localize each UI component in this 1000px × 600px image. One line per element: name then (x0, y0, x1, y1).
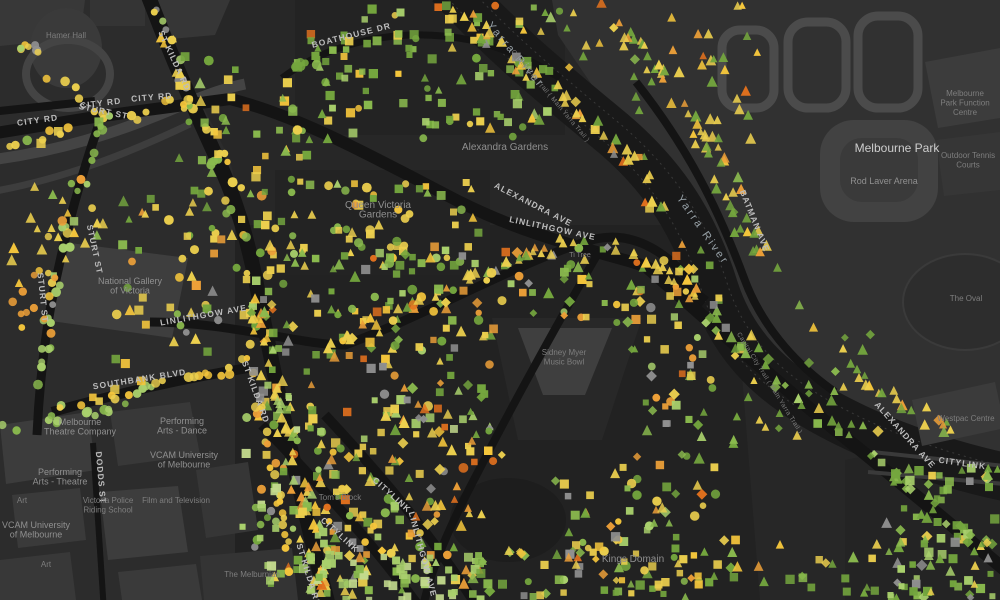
tree-marker-circle[interactable] (246, 340, 255, 349)
tree-marker-square[interactable] (644, 527, 651, 534)
tree-marker-circle[interactable] (30, 304, 38, 312)
tree-marker-square[interactable] (445, 566, 452, 573)
tree-marker-square[interactable] (586, 491, 594, 499)
tree-marker-circle[interactable] (337, 444, 345, 452)
tree-marker-square[interactable] (434, 285, 443, 294)
tree-marker-square[interactable] (263, 212, 272, 221)
tree-marker-square[interactable] (477, 595, 485, 600)
tree-marker-circle[interactable] (244, 270, 251, 277)
tree-marker-square[interactable] (307, 30, 315, 38)
tree-marker-circle[interactable] (472, 54, 481, 63)
tree-marker-square[interactable] (934, 518, 942, 526)
tree-marker-square[interactable] (909, 587, 917, 595)
tree-marker-circle[interactable] (122, 400, 129, 407)
tree-marker-square[interactable] (655, 581, 663, 589)
tree-marker-square[interactable] (260, 296, 267, 303)
tree-marker-square[interactable] (560, 268, 569, 277)
tree-marker-circle[interactable] (355, 105, 362, 112)
tree-marker-square[interactable] (912, 580, 921, 589)
tree-marker-circle[interactable] (39, 136, 47, 144)
tree-marker-circle[interactable] (429, 307, 438, 316)
tree-marker-square[interactable] (601, 586, 609, 594)
tree-marker-circle[interactable] (267, 507, 275, 515)
tree-marker-square[interactable] (297, 179, 303, 185)
tree-marker-square[interactable] (294, 426, 300, 432)
tree-marker-circle[interactable] (43, 75, 51, 83)
tree-marker-square[interactable] (258, 504, 266, 512)
tree-marker-circle[interactable] (690, 511, 700, 521)
map-viewport[interactable]: CITY RDCITY RDCITY RDSTURT STSTURT STSTU… (0, 0, 1000, 600)
tree-marker-square[interactable] (445, 29, 452, 36)
tree-marker-square[interactable] (928, 472, 936, 480)
tree-marker-square[interactable] (351, 180, 358, 187)
tree-marker-square[interactable] (197, 190, 205, 198)
tree-marker-square[interactable] (620, 464, 627, 471)
tree-marker-circle[interactable] (406, 210, 414, 218)
tree-marker-circle[interactable] (257, 485, 266, 494)
tree-marker-circle[interactable] (566, 260, 575, 269)
tree-marker-square[interactable] (360, 444, 366, 450)
tree-marker-square[interactable] (331, 471, 339, 479)
tree-marker-square[interactable] (406, 52, 412, 58)
tree-marker-circle[interactable] (302, 59, 309, 66)
tree-marker-circle[interactable] (485, 428, 492, 435)
tree-marker-square[interactable] (450, 425, 458, 433)
tree-marker-square[interactable] (213, 130, 221, 138)
tree-marker-circle[interactable] (411, 574, 420, 583)
tree-marker-square[interactable] (317, 428, 324, 435)
tree-marker-square[interactable] (474, 229, 482, 237)
tree-marker-square[interactable] (346, 108, 355, 117)
tree-marker-square[interactable] (713, 560, 722, 569)
tree-marker-square[interactable] (283, 406, 291, 414)
tree-marker-square[interactable] (473, 108, 480, 115)
tree-marker-square[interactable] (450, 261, 459, 270)
tree-marker-square[interactable] (450, 209, 457, 216)
tree-marker-square[interactable] (363, 88, 369, 94)
tree-marker-circle[interactable] (49, 301, 56, 308)
tree-marker-circle[interactable] (12, 426, 20, 434)
tree-marker-square[interactable] (498, 114, 504, 120)
tree-marker-square[interactable] (282, 348, 289, 355)
tree-marker-square[interactable] (343, 408, 351, 416)
tree-marker-square[interactable] (944, 485, 952, 493)
tree-marker-circle[interactable] (88, 157, 95, 164)
tree-marker-circle[interactable] (45, 233, 52, 240)
tree-marker-square[interactable] (662, 483, 671, 492)
tree-marker-square[interactable] (408, 555, 415, 562)
tree-marker-circle[interactable] (444, 254, 451, 261)
tree-marker-square[interactable] (705, 578, 713, 586)
tree-marker-square[interactable] (571, 511, 580, 520)
tree-marker-square[interactable] (397, 9, 405, 17)
tree-marker-circle[interactable] (487, 268, 497, 278)
tree-marker-square[interactable] (687, 362, 694, 369)
tree-marker-square[interactable] (272, 484, 281, 493)
tree-marker-circle[interactable] (491, 2, 499, 10)
tree-marker-circle[interactable] (659, 256, 668, 265)
tree-marker-square[interactable] (619, 577, 625, 583)
tree-marker-circle[interactable] (434, 511, 441, 518)
tree-marker-square[interactable] (372, 397, 378, 403)
tree-marker-square[interactable] (262, 189, 268, 195)
tree-marker-square[interactable] (369, 69, 378, 78)
tree-marker-square[interactable] (121, 359, 130, 368)
tree-marker-circle[interactable] (242, 413, 251, 422)
tree-marker-circle[interactable] (202, 370, 209, 377)
tree-marker-square[interactable] (395, 185, 404, 194)
tree-marker-square[interactable] (677, 570, 684, 577)
tree-marker-square[interactable] (312, 508, 320, 516)
tree-marker-square[interactable] (395, 71, 401, 77)
tree-marker-square[interactable] (324, 590, 331, 597)
tree-marker-square[interactable] (722, 324, 730, 332)
tree-marker-square[interactable] (329, 105, 336, 112)
tree-marker-square[interactable] (945, 477, 954, 486)
tree-marker-square[interactable] (240, 524, 246, 530)
tree-marker-circle[interactable] (391, 341, 400, 350)
tree-marker-circle[interactable] (272, 518, 280, 526)
tree-marker-square[interactable] (368, 5, 377, 14)
tree-marker-square[interactable] (602, 300, 608, 306)
tree-marker-square[interactable] (416, 343, 424, 351)
tree-marker-square[interactable] (628, 590, 634, 596)
tree-marker-square[interactable] (950, 580, 957, 587)
tree-marker-circle[interactable] (391, 372, 399, 380)
tree-marker-circle[interactable] (407, 285, 417, 295)
tree-marker-circle[interactable] (209, 225, 216, 232)
tree-marker-circle[interactable] (370, 255, 377, 262)
tree-marker-square[interactable] (438, 99, 446, 107)
tree-marker-square[interactable] (118, 240, 127, 249)
tree-marker-square[interactable] (252, 277, 261, 286)
tree-marker-square[interactable] (539, 65, 547, 73)
tree-marker-square[interactable] (299, 508, 307, 516)
tree-marker-circle[interactable] (72, 83, 80, 91)
tree-marker-circle[interactable] (613, 301, 620, 308)
tree-marker-circle[interactable] (384, 258, 394, 268)
tree-marker-square[interactable] (272, 525, 279, 532)
tree-marker-circle[interactable] (579, 539, 586, 546)
tree-marker-circle[interactable] (242, 232, 251, 241)
tree-marker-circle[interactable] (346, 512, 354, 520)
tree-marker-square[interactable] (426, 413, 435, 422)
tree-marker-circle[interactable] (18, 324, 25, 331)
tree-marker-square[interactable] (365, 338, 374, 347)
tree-marker-square[interactable] (513, 99, 522, 108)
tree-marker-square[interactable] (691, 552, 697, 558)
tree-marker-square[interactable] (269, 329, 278, 338)
tree-marker-square[interactable] (375, 534, 382, 541)
tree-marker-square[interactable] (238, 216, 245, 223)
tree-marker-square[interactable] (470, 37, 477, 44)
tree-marker-square[interactable] (265, 288, 272, 295)
tree-marker-square[interactable] (147, 195, 155, 203)
tree-marker-square[interactable] (482, 332, 488, 338)
tree-marker-square[interactable] (405, 45, 412, 52)
tree-marker-circle[interactable] (387, 243, 394, 250)
tree-marker-circle[interactable] (225, 370, 234, 379)
tree-marker-circle[interactable] (361, 538, 369, 546)
tree-marker-square[interactable] (212, 106, 220, 114)
tree-marker-square[interactable] (399, 99, 407, 107)
tree-marker-square[interactable] (575, 570, 583, 578)
tree-marker-square[interactable] (479, 64, 488, 73)
tree-marker-square[interactable] (350, 560, 357, 567)
tree-marker-square[interactable] (953, 521, 961, 529)
tree-marker-circle[interactable] (98, 125, 108, 135)
tree-marker-circle[interactable] (74, 188, 80, 194)
tree-marker-square[interactable] (370, 448, 377, 455)
tree-marker-square[interactable] (306, 181, 315, 190)
tree-marker-square[interactable] (210, 250, 218, 258)
tree-marker-square[interactable] (625, 485, 631, 491)
tree-marker-square[interactable] (383, 306, 390, 313)
tree-marker-square[interactable] (674, 322, 682, 330)
tree-marker-square[interactable] (396, 516, 405, 525)
tree-marker-circle[interactable] (125, 391, 133, 399)
tree-marker-circle[interactable] (60, 77, 70, 87)
tree-marker-square[interactable] (341, 75, 348, 82)
tree-marker-circle[interactable] (179, 255, 187, 263)
tree-marker-square[interactable] (363, 40, 371, 48)
tree-marker-circle[interactable] (25, 43, 32, 50)
tree-marker-square[interactable] (349, 579, 358, 588)
tree-marker-circle[interactable] (281, 515, 288, 522)
tree-marker-square[interactable] (475, 72, 483, 80)
tree-marker-circle[interactable] (19, 287, 27, 295)
tree-marker-square[interactable] (390, 405, 399, 414)
tree-marker-square[interactable] (312, 351, 320, 359)
tree-marker-square[interactable] (841, 574, 849, 582)
tree-marker-square[interactable] (134, 306, 143, 315)
tree-marker-square[interactable] (636, 580, 645, 589)
tree-marker-square[interactable] (901, 505, 907, 511)
tree-marker-square[interactable] (868, 555, 876, 563)
tree-marker-square[interactable] (311, 294, 319, 302)
tree-marker-square[interactable] (626, 507, 634, 515)
tree-marker-square[interactable] (506, 65, 514, 73)
tree-marker-square[interactable] (214, 150, 222, 158)
tree-marker-square[interactable] (516, 18, 524, 26)
tree-marker-square[interactable] (280, 468, 287, 475)
tree-marker-square[interactable] (560, 480, 569, 489)
tree-marker-square[interactable] (322, 58, 329, 65)
tree-marker-circle[interactable] (267, 464, 274, 471)
tree-marker-square[interactable] (949, 554, 958, 563)
tree-marker-circle[interactable] (175, 273, 184, 282)
tree-marker-circle[interactable] (22, 136, 32, 146)
tree-marker-square[interactable] (878, 459, 886, 467)
tree-marker-square[interactable] (264, 382, 271, 389)
tree-marker-square[interactable] (476, 569, 485, 578)
tree-marker-circle[interactable] (52, 274, 59, 281)
tree-marker-square[interactable] (425, 95, 431, 101)
tree-marker-square[interactable] (447, 372, 454, 379)
tree-marker-square[interactable] (296, 154, 303, 161)
tree-marker-square[interactable] (95, 397, 103, 405)
tree-marker-circle[interactable] (190, 245, 199, 254)
tree-marker-square[interactable] (460, 287, 468, 295)
tree-marker-square[interactable] (452, 222, 459, 229)
tree-marker-circle[interactable] (354, 238, 363, 247)
tree-marker-square[interactable] (94, 117, 103, 126)
tree-marker-circle[interactable] (180, 101, 187, 108)
tree-marker-square[interactable] (304, 368, 310, 374)
tree-marker-circle[interactable] (437, 337, 446, 346)
tree-marker-circle[interactable] (389, 316, 398, 325)
tree-marker-square[interactable] (373, 308, 382, 317)
tree-marker-circle[interactable] (38, 345, 46, 353)
tree-marker-square[interactable] (672, 401, 681, 410)
tree-marker-square[interactable] (253, 131, 260, 138)
tree-marker-square[interactable] (843, 588, 851, 596)
tree-marker-square[interactable] (964, 576, 973, 585)
tree-marker-square[interactable] (442, 247, 450, 255)
tree-marker-circle[interactable] (18, 311, 25, 318)
tree-marker-square[interactable] (443, 325, 450, 332)
tree-marker-circle[interactable] (228, 177, 238, 187)
tree-marker-circle[interactable] (128, 258, 136, 266)
tree-marker-circle[interactable] (31, 41, 39, 49)
tree-marker-square[interactable] (631, 315, 640, 324)
tree-marker-square[interactable] (989, 593, 995, 599)
tree-marker-square[interactable] (937, 534, 946, 543)
tree-marker-circle[interactable] (77, 401, 85, 409)
tree-marker-square[interactable] (381, 554, 387, 560)
tree-marker-square[interactable] (437, 576, 445, 584)
tree-marker-circle[interactable] (392, 237, 401, 246)
tree-marker-circle[interactable] (264, 440, 271, 447)
tree-marker-circle[interactable] (483, 277, 490, 284)
tree-marker-circle[interactable] (707, 376, 715, 384)
tree-marker-square[interactable] (731, 536, 740, 545)
tree-marker-circle[interactable] (324, 181, 333, 190)
tree-marker-circle[interactable] (204, 56, 214, 66)
tree-marker-circle[interactable] (424, 85, 431, 92)
tree-marker-square[interactable] (813, 419, 822, 428)
tree-marker-circle[interactable] (271, 225, 279, 233)
tree-marker-square[interactable] (319, 528, 327, 536)
tree-marker-square[interactable] (341, 53, 348, 60)
tree-marker-square[interactable] (647, 315, 656, 324)
tree-marker-circle[interactable] (84, 181, 91, 188)
tree-marker-square[interactable] (418, 259, 426, 267)
tree-marker-circle[interactable] (519, 123, 526, 130)
tree-marker-square[interactable] (437, 191, 446, 200)
tree-marker-square[interactable] (367, 364, 376, 373)
tree-marker-square[interactable] (335, 227, 342, 234)
tree-marker-square[interactable] (988, 571, 994, 577)
tree-marker-circle[interactable] (689, 354, 696, 361)
tree-marker-circle[interactable] (47, 329, 56, 338)
tree-marker-square[interactable] (465, 243, 473, 251)
tree-marker-circle[interactable] (186, 119, 193, 126)
tree-marker-square[interactable] (990, 514, 999, 523)
tree-marker-square[interactable] (595, 543, 603, 551)
tree-marker-square[interactable] (70, 217, 78, 225)
tree-marker-square[interactable] (936, 472, 942, 478)
tree-marker-square[interactable] (679, 555, 687, 563)
tree-marker-circle[interactable] (671, 554, 678, 561)
tree-marker-square[interactable] (198, 156, 206, 164)
tree-marker-square[interactable] (302, 151, 311, 160)
tree-marker-square[interactable] (217, 235, 225, 243)
tree-marker-square[interactable] (339, 579, 348, 588)
tree-marker-square[interactable] (905, 476, 914, 485)
tree-marker-square[interactable] (387, 298, 393, 304)
tree-marker-square[interactable] (660, 345, 669, 354)
tree-marker-square[interactable] (430, 243, 439, 252)
tree-marker-square[interactable] (483, 579, 492, 588)
tree-marker-circle[interactable] (681, 578, 688, 585)
tree-marker-square[interactable] (816, 556, 823, 563)
tree-marker-square[interactable] (914, 466, 923, 475)
tree-marker-circle[interactable] (17, 45, 24, 52)
tree-marker-circle[interactable] (419, 134, 427, 142)
tree-marker-square[interactable] (346, 236, 353, 243)
tree-marker-circle[interactable] (285, 567, 294, 576)
tree-marker-circle[interactable] (348, 305, 356, 313)
tree-marker-square[interactable] (393, 270, 400, 277)
tree-marker-square[interactable] (377, 429, 384, 436)
tree-marker-square[interactable] (396, 565, 404, 573)
tree-marker-square[interactable] (442, 1, 451, 10)
tree-marker-square[interactable] (451, 344, 458, 351)
tree-marker-circle[interactable] (238, 184, 245, 191)
tree-marker-square[interactable] (671, 313, 678, 320)
tree-marker-square[interactable] (343, 46, 349, 52)
tree-marker-circle[interactable] (330, 449, 337, 456)
tree-marker-square[interactable] (502, 248, 511, 256)
tree-marker-square[interactable] (446, 116, 453, 123)
tree-marker-square[interactable] (289, 506, 298, 515)
tree-marker-square[interactable] (398, 596, 405, 600)
tree-marker-square[interactable] (951, 538, 960, 547)
tree-marker-circle[interactable] (217, 372, 225, 380)
tree-marker-square[interactable] (656, 461, 664, 469)
tree-marker-square[interactable] (232, 66, 239, 73)
tree-marker-circle[interactable] (159, 18, 166, 25)
tree-marker-circle[interactable] (632, 490, 641, 499)
tree-marker-circle[interactable] (58, 216, 68, 226)
tree-marker-square[interactable] (452, 114, 459, 121)
tree-marker-circle[interactable] (88, 204, 96, 212)
tree-marker-square[interactable] (560, 589, 566, 595)
tree-marker-square[interactable] (308, 406, 316, 414)
tree-marker-circle[interactable] (615, 518, 621, 524)
tree-marker-square[interactable] (362, 16, 368, 22)
tree-marker-circle[interactable] (64, 123, 73, 132)
tree-marker-circle[interactable] (290, 526, 296, 532)
tree-marker-circle[interactable] (8, 298, 17, 307)
tree-marker-square[interactable] (228, 94, 236, 102)
tree-marker-circle[interactable] (449, 286, 457, 294)
tree-marker-circle[interactable] (226, 205, 235, 214)
tree-marker-circle[interactable] (35, 49, 42, 56)
tree-marker-circle[interactable] (556, 8, 563, 15)
tree-marker-circle[interactable] (33, 380, 43, 390)
tree-marker-square[interactable] (730, 573, 738, 581)
tree-marker-square[interactable] (423, 183, 429, 189)
tree-marker-circle[interactable] (270, 470, 279, 479)
tree-marker-square[interactable] (451, 574, 458, 581)
tree-marker-square[interactable] (422, 118, 429, 125)
tree-marker-circle[interactable] (683, 288, 689, 294)
tree-marker-square[interactable] (909, 561, 916, 568)
tree-marker-circle[interactable] (371, 293, 379, 301)
tree-marker-circle[interactable] (111, 395, 120, 404)
